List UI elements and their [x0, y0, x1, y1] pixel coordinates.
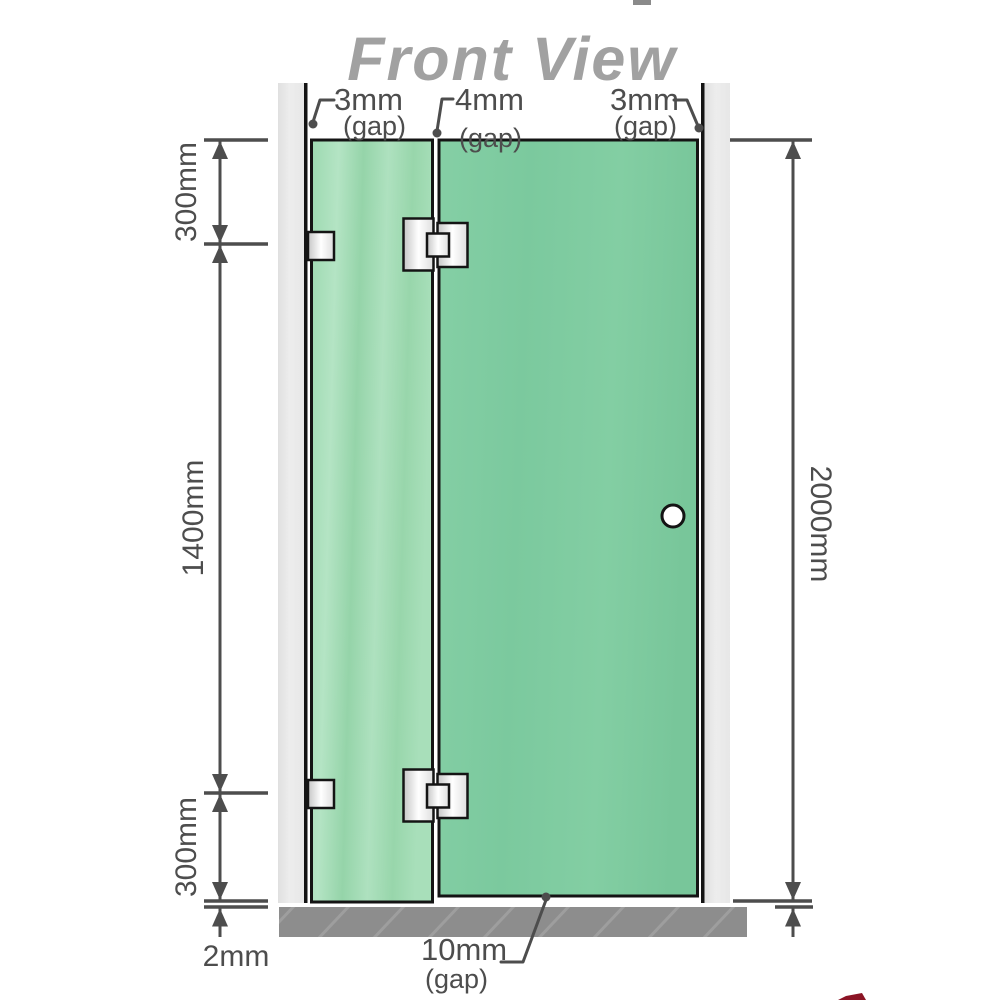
arrow-up — [212, 794, 228, 812]
hinge-connector — [427, 234, 449, 257]
gap-suffix: (gap) — [459, 123, 522, 153]
arrow-down — [212, 225, 228, 243]
gap-callout-top-right: 3mm (gap) — [610, 82, 704, 141]
left-wall — [278, 83, 308, 903]
leader-dot — [433, 129, 442, 138]
leader-dot — [695, 124, 704, 133]
dimension-chain-left: 300mm 1400mm 300mm 2mm — [170, 140, 269, 973]
gap-value: 4mm — [455, 82, 524, 117]
door-glass-panel — [439, 140, 698, 896]
arrow-down — [212, 882, 228, 900]
arrow-down — [785, 882, 801, 900]
gap-callout-top-left: 3mm (gap) — [309, 82, 407, 141]
arrow-up — [212, 245, 228, 263]
gap-suffix: (gap) — [614, 111, 677, 141]
gap-suffix: (gap) — [343, 111, 406, 141]
front-view-diagram: Front View — [0, 0, 1000, 1000]
dim-label-2mm: 2mm — [203, 940, 270, 973]
logo-sliver — [838, 993, 866, 1000]
hinge-connector — [427, 785, 449, 808]
door-knob — [662, 505, 684, 527]
wall-bracket-bottom — [308, 780, 334, 808]
leader-dot — [309, 120, 318, 129]
arrow-down — [212, 774, 228, 792]
dim-label-300mm-bottom: 300mm — [170, 797, 203, 897]
gap-value: 10mm — [421, 932, 507, 967]
dim-label-2000mm: 2000mm — [804, 466, 837, 583]
dim-label-300mm-top: 300mm — [170, 142, 203, 242]
right-wall — [701, 83, 730, 903]
arrow-up — [212, 909, 228, 927]
dimension-right-total: 2000mm — [730, 140, 837, 937]
arrow-up — [785, 141, 801, 159]
arrow-up — [785, 909, 801, 927]
door-hinge-bottom — [404, 770, 468, 822]
arrow-up — [212, 141, 228, 159]
diagram-page: Front View — [0, 0, 1000, 1000]
right-wall-edge — [701, 83, 705, 903]
top-edge-artifact — [633, 0, 651, 5]
dim-label-1400mm: 1400mm — [177, 460, 210, 577]
door-hinge-top — [404, 219, 468, 271]
gap-suffix: (gap) — [425, 964, 488, 994]
leader-dot — [542, 893, 551, 902]
wall-bracket-top — [308, 232, 334, 260]
